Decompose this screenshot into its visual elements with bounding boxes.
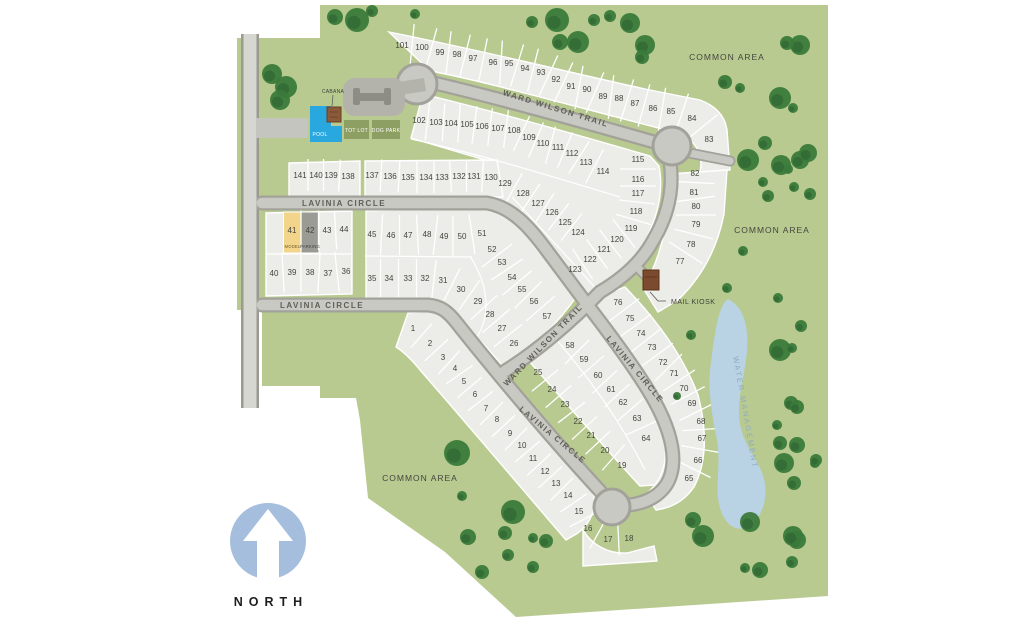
lot-number: 51 [478,229,487,238]
tree-icon [771,94,783,106]
lot-number: 53 [498,258,507,267]
lot-number: 80 [692,202,701,211]
lot-number: 85 [667,107,676,116]
tree-icon [739,249,745,255]
lot-number: 78 [687,240,696,249]
lot-number: 140 [309,171,323,180]
tree-icon [462,534,471,543]
street-name-label: LAVINIA CIRCLE [302,199,386,208]
lot-number: 25 [534,368,543,377]
lot-number: 64 [642,434,651,443]
lot-number: 52 [488,245,497,254]
lot-number: 137 [365,171,379,180]
lot-number: 84 [688,114,697,123]
lot-number: 39 [288,268,297,277]
lot-number: 58 [566,341,575,350]
lot-number: 11 [529,454,538,463]
lot-number: 86 [649,104,658,113]
site-plan: 1234567891011121314151617181920212223242… [0,0,1035,635]
lot-number: 40 [270,269,279,278]
lot-number: 95 [505,59,514,68]
lot-number: 88 [615,94,624,103]
tree-icon [790,185,796,191]
amenity-building [353,88,360,105]
lot-number: 101 [395,41,409,50]
lot-number: 104 [444,119,458,128]
common-area-label: COMMON AREA [689,52,765,62]
lot-number: 122 [583,255,597,264]
parking-lot-label: PARKING [300,244,320,249]
lot-number: 81 [690,188,699,197]
lot-number: 76 [614,298,623,307]
tree-icon [458,494,464,500]
lot-number: 112 [566,149,579,158]
tree-icon [759,180,765,186]
lot-number: 18 [625,534,634,543]
lot-number: 35 [368,274,377,283]
tot-lot-label: TOT LOT [345,128,368,134]
lot-number: 23 [561,400,570,409]
tree-icon [529,536,535,542]
tree-icon [791,442,800,451]
lot-number: 2 [428,339,433,348]
lot-number: 111 [552,143,565,152]
lot-number: 110 [537,139,550,148]
lot-number: 79 [692,220,701,229]
tree-icon [547,16,560,29]
lot-number: 105 [460,120,474,129]
street-name-label: LAVINIA CIRCLE [280,301,364,310]
lot-number: 37 [324,269,333,278]
lot-number: 93 [537,68,546,77]
lot-number: 16 [584,524,593,533]
lot-number: 67 [698,434,707,443]
tree-icon [723,286,729,292]
tree-icon [329,14,338,23]
tree-icon [796,324,803,331]
tree-icon [528,565,535,572]
lot-number: 29 [474,297,483,306]
tree-icon [503,553,510,560]
lot-number: 60 [594,371,603,380]
common-area-label: COMMON AREA [382,473,458,483]
lot-number: 32 [421,274,430,283]
model-lot-label: MODEL [285,244,301,249]
lot-number: 68 [697,417,706,426]
tree-icon [264,71,275,82]
tree-icon [674,395,678,399]
lot-number: 7 [484,404,489,413]
lot-number: 48 [423,230,432,239]
tree-icon [272,97,283,108]
lot-number: 63 [633,414,642,423]
lot-number: 54 [508,273,517,282]
lot-number: 17 [604,535,613,544]
lot-number: 69 [688,399,697,408]
lot-number: 72 [659,358,668,367]
lot-number: 66 [694,456,703,465]
lot-number: 120 [610,235,624,244]
lot-number: 57 [543,312,552,321]
tree-icon [776,460,787,471]
lot-number: 13 [552,479,561,488]
lot-number: 121 [597,245,611,254]
tree-icon [789,106,795,112]
lot-number: 8 [495,415,500,424]
lot-number: 138 [341,172,355,181]
lot-number: 28 [486,310,495,319]
tree-icon [787,560,794,567]
lot-number: 55 [518,285,527,294]
lot-number: 118 [630,207,643,216]
tree-icon [569,38,581,50]
tree-icon [499,531,507,539]
lot-number: 141 [293,171,307,180]
tree-icon [773,162,784,173]
tree-icon [589,18,596,25]
lot-number: 133 [435,173,449,182]
roundabout-northeast [653,127,691,165]
lot-number: 34 [385,274,394,283]
tree-icon [636,55,644,63]
dog-park-label: DOG PARK [372,128,401,134]
lot-number: 113 [580,158,593,167]
lot-number: 119 [625,224,638,233]
tree-icon [781,41,789,49]
lot-number: 4 [453,364,458,373]
lot-number: 6 [473,390,478,399]
lot-number: 92 [552,75,561,84]
lot-number: 100 [415,43,429,52]
lot-number: 49 [440,232,449,241]
lot-number: 74 [637,329,646,338]
cul-de-sac-south [594,489,630,525]
lot-number: 41 [288,226,297,235]
lot-number: 9 [508,429,513,438]
tree-icon [739,156,751,168]
lot-number: 107 [491,124,505,133]
tree-icon [741,566,747,572]
lot-number: 124 [571,228,585,237]
lot-number: 106 [475,122,489,131]
tree-icon [811,458,818,465]
amenity-building [384,88,391,105]
tree-icon [605,14,612,21]
tree-icon [736,86,742,92]
lot-number: 108 [507,126,521,135]
lot-number: 83 [705,135,714,144]
lot-number: 42 [306,226,315,235]
tree-icon [763,194,770,201]
street-parking [256,118,308,138]
tree-icon [719,80,727,88]
lot-number: 127 [531,199,545,208]
lot-number: 87 [631,99,640,108]
lot-number: 129 [498,179,512,188]
tree-icon [476,570,484,578]
pool-label: POOL [312,132,327,138]
tree-icon [687,517,696,526]
lot-number: 91 [567,82,576,91]
lot-number: 1 [411,324,416,333]
tree-icon [754,567,763,576]
tree-icon [554,39,563,48]
lot-number: 128 [516,189,530,198]
lot-number: 109 [522,133,536,142]
tree-icon [347,16,360,29]
lot-number: 71 [670,369,679,378]
lot-number: 47 [404,231,413,240]
lot-number: 99 [436,48,445,57]
amenity-building [355,93,389,101]
lot-number: 126 [545,208,559,217]
tree-icon [801,150,811,160]
tree-icon [791,405,799,413]
lot-number: 50 [458,232,467,241]
lot-number: 123 [568,265,582,274]
tree-icon [527,20,534,27]
tree-icon [503,508,516,521]
lot-number: 82 [691,169,700,178]
lot-number: 38 [306,268,315,277]
lot-number: 102 [412,116,426,125]
mail-kiosk-icon [643,270,659,290]
lot-number: 21 [587,431,596,440]
lot-number: 73 [648,343,657,352]
lot-number: 131 [467,172,481,181]
tree-icon [687,333,693,339]
lot-number: 117 [632,189,645,198]
lot-number: 70 [680,384,689,393]
lot-number: 116 [632,175,645,184]
tree-icon [759,141,767,149]
lot-number: 89 [599,92,608,101]
lot-number: 12 [541,467,550,476]
lot-number: 10 [518,441,527,450]
lot-number: 134 [419,173,433,182]
lot-number: 97 [469,54,478,63]
lot-number: 90 [583,85,592,94]
tree-icon [785,533,796,544]
tree-icon [774,441,782,449]
lot-number: 56 [530,297,539,306]
lot-number: 3 [441,353,446,362]
lot-number: 114 [597,167,610,176]
tree-icon [447,448,461,462]
tree-icon [694,532,706,544]
lot-number: 45 [368,230,377,239]
lot-number: 5 [462,377,467,386]
tree-icon [788,481,796,489]
lot-number: 125 [558,218,572,227]
tree-icon [805,192,812,199]
lot-number: 33 [404,274,413,283]
lot-number: 115 [632,155,645,164]
lot-number: 26 [510,339,519,348]
north-arrow: NORTH [230,503,308,609]
lot-number: 14 [564,491,573,500]
tree-icon [742,519,753,530]
lot-number: 30 [457,285,466,294]
lot-number: 135 [401,173,415,182]
tree-icon [788,346,794,352]
lot-number: 19 [618,461,627,470]
tree-icon [411,12,417,18]
lot-number: 136 [383,172,397,181]
site-plan-canvas: 1234567891011121314151617181920212223242… [0,0,1035,635]
common-area-label: COMMON AREA [734,225,810,235]
cabana-label: CABANA [322,89,345,95]
tree-icon [540,539,548,547]
lot-number: 98 [453,50,462,59]
lot-number: 24 [548,385,557,394]
lot-number: 132 [452,172,466,181]
tree-icon [774,296,780,302]
lot-number: 22 [574,417,583,426]
lot-number: 44 [340,225,349,234]
tree-icon [773,423,779,429]
lot-number: 75 [626,314,635,323]
lot-number: 20 [601,446,610,455]
lot-number: 77 [676,257,685,266]
lot-number: 27 [498,324,507,333]
lot-number: 61 [607,385,616,394]
tree-icon [771,346,783,358]
mail-kiosk-label: MAIL KIOSK [671,299,715,306]
lot-number: 65 [685,474,694,483]
tree-icon [622,20,633,31]
lot-number: 130 [484,173,498,182]
lot-number: 36 [342,267,351,276]
north-label: NORTH [234,595,308,609]
lot-number: 94 [521,64,530,73]
cabana-building [327,107,341,122]
lot-number: 15 [575,507,584,516]
lot-number: 96 [489,58,498,67]
lot-number: 31 [439,276,448,285]
lot-number: 43 [323,226,332,235]
lot-number: 103 [429,118,443,127]
lot-number: 62 [619,398,628,407]
lot-number: 59 [580,355,589,364]
lot-number: 46 [387,231,396,240]
lot-number: 139 [324,171,338,180]
tree-icon [367,9,374,16]
